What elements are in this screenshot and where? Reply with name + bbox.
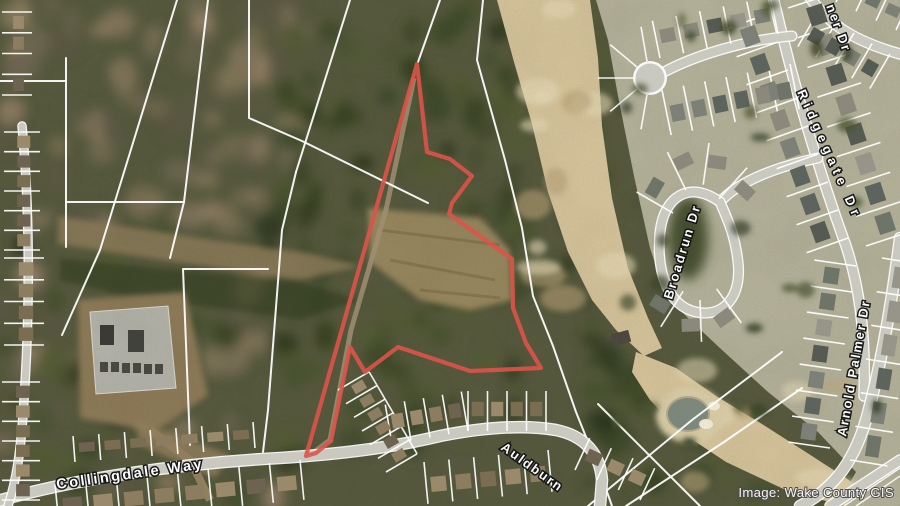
house-roof [13, 16, 24, 29]
yard-tree [657, 234, 670, 248]
house-roof [13, 78, 24, 91]
house-roof [511, 402, 523, 416]
house-roof [156, 435, 173, 446]
house-roof [17, 136, 30, 148]
house-roof [233, 429, 250, 440]
yard-tree [731, 220, 751, 235]
yard-tree [750, 404, 768, 417]
house-roof [491, 402, 503, 416]
house-roof [16, 425, 30, 437]
yard-tree [837, 118, 857, 133]
house-roof [277, 475, 297, 491]
house-roof [104, 439, 121, 450]
house-roof [16, 464, 30, 476]
yard-tree [682, 437, 696, 446]
house-roof [530, 402, 542, 416]
house-roof [207, 431, 224, 442]
house-roof [659, 27, 676, 43]
house-roof [246, 478, 266, 494]
house-roof [17, 195, 30, 207]
house-roof [823, 267, 840, 285]
yard-tree [621, 102, 632, 114]
yard-tree [750, 133, 770, 142]
house-roof [681, 318, 699, 332]
house-roof [815, 319, 832, 337]
aerial-map: Collingdale Way Auldburn Broadrun Dr Rid… [0, 0, 900, 506]
credit-text: Image: Wake County GIS [738, 485, 894, 500]
house-roof [808, 371, 825, 389]
yard-tree [686, 31, 696, 42]
house-roof [17, 155, 30, 167]
house-roof [19, 262, 33, 276]
house-roof [455, 473, 472, 490]
house-roof [78, 441, 95, 452]
yard-tree [612, 414, 622, 428]
house-roof [472, 402, 484, 416]
yard-tree [763, 0, 779, 9]
house-roof [17, 234, 30, 246]
house-roof [706, 17, 723, 33]
house-roof [181, 433, 198, 444]
yard-tree [733, 404, 745, 413]
yard-tree [721, 20, 737, 35]
aerial-imagery: Collingdale Way Auldburn Broadrun Dr Rid… [0, 0, 900, 506]
house-roof [13, 58, 24, 71]
yard-tree [744, 105, 757, 119]
house-roof [215, 481, 235, 497]
house-roof [480, 471, 497, 488]
house-roof [185, 484, 205, 500]
house-roof [16, 386, 30, 398]
house-roof [13, 37, 24, 50]
house-roof [16, 484, 30, 496]
house-roof [17, 175, 30, 187]
house-roof [391, 413, 405, 429]
house-roof [154, 487, 174, 503]
yard-tree [810, 40, 822, 58]
house-roof [804, 397, 821, 415]
house-roof [448, 403, 462, 419]
house-roof [93, 493, 113, 506]
yard-tree [632, 83, 648, 94]
house-roof [430, 475, 447, 492]
house-roof [130, 437, 147, 448]
house-roof [811, 345, 828, 363]
yard-tree [782, 284, 798, 293]
house-roof [410, 409, 424, 425]
house-roof [19, 306, 33, 320]
yard-tree [620, 294, 636, 310]
house-roof [505, 468, 522, 485]
house-roof [19, 284, 33, 298]
yard-tree [677, 13, 686, 29]
house-roof [819, 293, 836, 311]
house-roof [16, 445, 30, 457]
house-roof [19, 327, 33, 341]
yard-tree [746, 323, 763, 332]
house-roof [17, 214, 30, 226]
yard-tree [872, 399, 882, 414]
yard-tree [797, 282, 815, 298]
house-roof [800, 423, 817, 441]
house-roof [429, 406, 443, 422]
house-roof [124, 490, 144, 506]
yard-tree [641, 402, 660, 413]
house-roof [16, 405, 30, 417]
house-roof [707, 155, 727, 170]
